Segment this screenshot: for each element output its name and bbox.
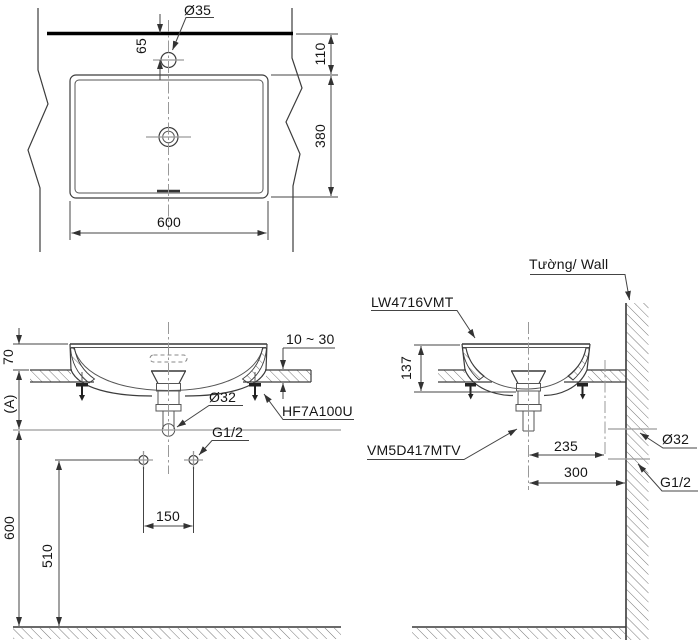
side-dim-235: 235 bbox=[546, 438, 586, 454]
basin-side-profile bbox=[462, 344, 590, 396]
basin-code-leader bbox=[371, 311, 475, 339]
side-dim-300: 300 bbox=[556, 464, 596, 480]
front-dim-150: 150 bbox=[148, 508, 188, 524]
supply-thread-leader bbox=[199, 441, 249, 456]
wall-label: Tường/ Wall bbox=[529, 256, 608, 272]
side-valve-model-code: VM5D417MTV bbox=[367, 442, 461, 458]
drawing-linework bbox=[0, 0, 700, 640]
side-dim-137: 137 bbox=[398, 353, 414, 383]
plan-dimension-lines bbox=[70, 14, 338, 240]
installation-drawing: Ø35 65 110 380 600 70 (A) 600 510 150 Ø3… bbox=[0, 0, 700, 640]
plan-dim-600: 600 bbox=[149, 214, 189, 230]
plan-dim-110: 110 bbox=[312, 39, 328, 69]
side-floor bbox=[412, 627, 626, 639]
side-supply-thread-label: G1/2 bbox=[660, 474, 691, 490]
front-counter-thickness-label: 10 ~ 30 bbox=[286, 331, 335, 347]
front-dim-510: 510 bbox=[39, 541, 55, 571]
wall-label-leader bbox=[530, 275, 630, 301]
front-drain-fitting-code: HF7A100U bbox=[282, 403, 353, 419]
front-dim-600: 600 bbox=[1, 513, 17, 543]
front-dim-A: (A) bbox=[1, 389, 17, 419]
plan-dim-65: 65 bbox=[133, 31, 149, 61]
front-drain-dia-label: Ø32 bbox=[209, 389, 236, 405]
front-floor bbox=[13, 627, 341, 639]
plan-dim-380: 380 bbox=[312, 121, 328, 151]
side-drain-dia-label: Ø32 bbox=[662, 431, 689, 447]
front-supply-thread-label: G1/2 bbox=[212, 424, 243, 440]
front-dim-70: 70 bbox=[0, 342, 16, 372]
plan-faucet-dia-label: Ø35 bbox=[184, 2, 211, 18]
front-view-drawing bbox=[13, 322, 354, 639]
side-basin-model-code: LW4716VMT bbox=[371, 294, 453, 310]
